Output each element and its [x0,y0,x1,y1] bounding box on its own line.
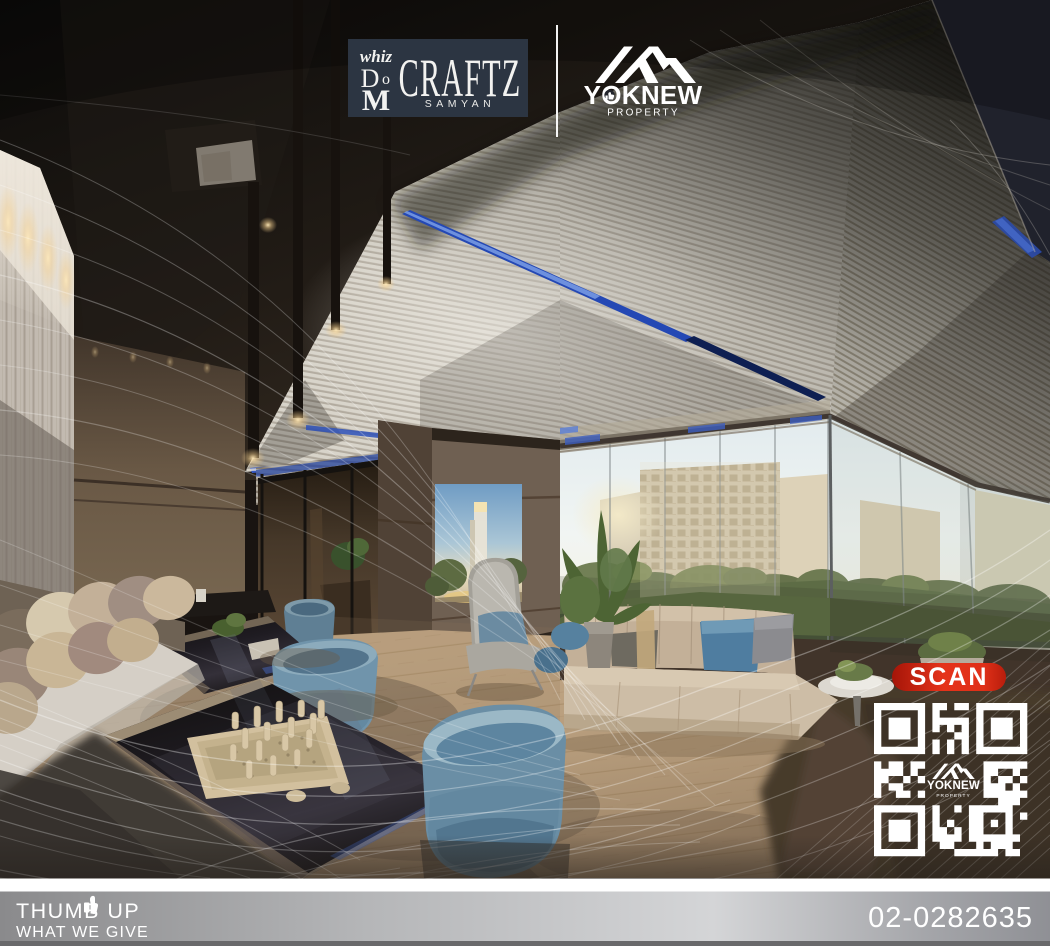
svg-text:YOKNEW: YOKNEW [584,80,703,110]
svg-text:WHAT WE GIVE: WHAT WE GIVE [16,924,149,941]
svg-text:02-0282635: 02-0282635 [868,902,1033,934]
svg-text:SCAN: SCAN [910,663,989,691]
svg-text:SAMYAN: SAMYAN [425,98,496,110]
svg-text:PROPERTY: PROPERTY [607,108,679,119]
svg-text:YOKNEW: YOKNEW [927,780,980,792]
svg-text:THUMB UP: THUMB UP [16,899,140,923]
svg-text:M: M [362,84,390,117]
svg-text:PROPERTY: PROPERTY [936,793,970,799]
